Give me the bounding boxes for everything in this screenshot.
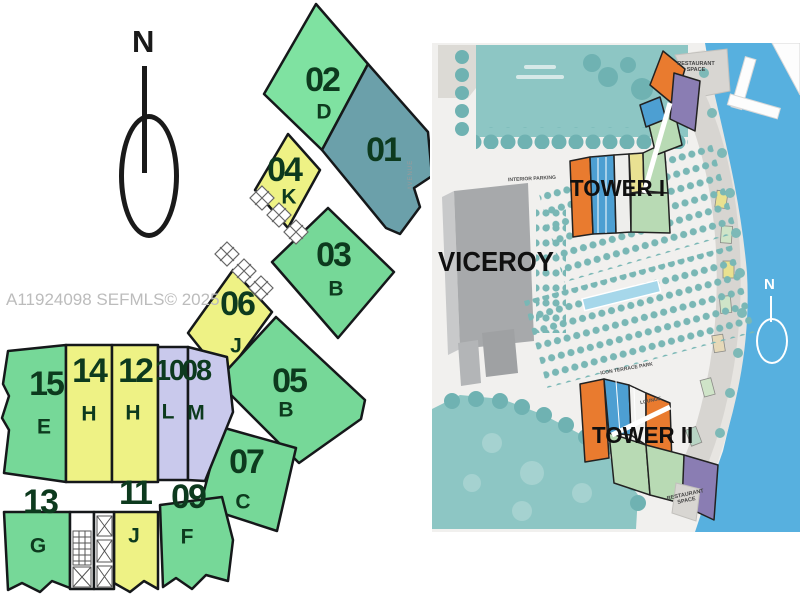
- avenue-street-label: AVENUE: [408, 160, 414, 190]
- unit-12-number: 12: [118, 356, 152, 386]
- viceroy-label: VICEROY: [438, 246, 554, 278]
- unit-13-letter: G: [30, 537, 46, 556]
- restaurant-label-top-line2: SPACE: [668, 67, 724, 73]
- unit-06-number: 06: [220, 289, 254, 319]
- unit-11-letter: J: [128, 527, 140, 546]
- unit-08-letter: M: [187, 404, 205, 423]
- unit-07-number: 07: [229, 447, 263, 477]
- unit-08-number: 08: [182, 356, 210, 386]
- water-north-compass-ring: [756, 318, 788, 364]
- north-compass-ring: [119, 114, 179, 238]
- unit-10-number: 10: [155, 356, 183, 386]
- unit-02-number: 02: [305, 65, 339, 95]
- unit-05-letter: B: [278, 401, 293, 420]
- north-compass-icon: N: [132, 24, 154, 60]
- unit-02-letter: D: [316, 103, 331, 122]
- unit-03-number: 03: [316, 240, 350, 270]
- unit-11-number: 11: [119, 478, 151, 508]
- unit-09-number: 09: [171, 482, 205, 512]
- tower1-label: TOWER I: [570, 175, 665, 202]
- viceroy-annex-2: [458, 340, 481, 386]
- unit-05-number: 05: [272, 366, 306, 396]
- water-north-compass-icon: N: [764, 276, 775, 293]
- unit-09-letter: F: [181, 528, 194, 547]
- unit-04-letter: K: [281, 188, 296, 207]
- mls-watermark: A11924098 SEFMLS© 2025: [6, 290, 220, 310]
- viceroy-annex-1: [482, 329, 518, 377]
- unit-15-number: 15: [29, 369, 63, 399]
- restaurant-label-top: RESTAURANT SPACE: [668, 61, 724, 73]
- unit-13-number: 13: [23, 487, 57, 517]
- unit-01-number: 01: [366, 135, 400, 165]
- siteplan-drawing: [432, 43, 800, 532]
- screenshot-root: 01 02 03 04 05 06 07 08 09 10 11 12 13 1…: [0, 0, 800, 600]
- unit-14-number: 14: [72, 356, 106, 386]
- tower2-label: TOWER II: [592, 422, 693, 449]
- unit-14-letter: H: [81, 405, 96, 424]
- unit-10-letter: L: [162, 403, 175, 422]
- unit-04-number: 04: [267, 155, 301, 185]
- unit-03-letter: B: [328, 280, 343, 299]
- unit-12-letter: H: [125, 404, 140, 423]
- unit-15-letter: E: [37, 418, 51, 437]
- unit-06-letter: J: [230, 337, 242, 356]
- unit-07-letter: C: [235, 493, 250, 512]
